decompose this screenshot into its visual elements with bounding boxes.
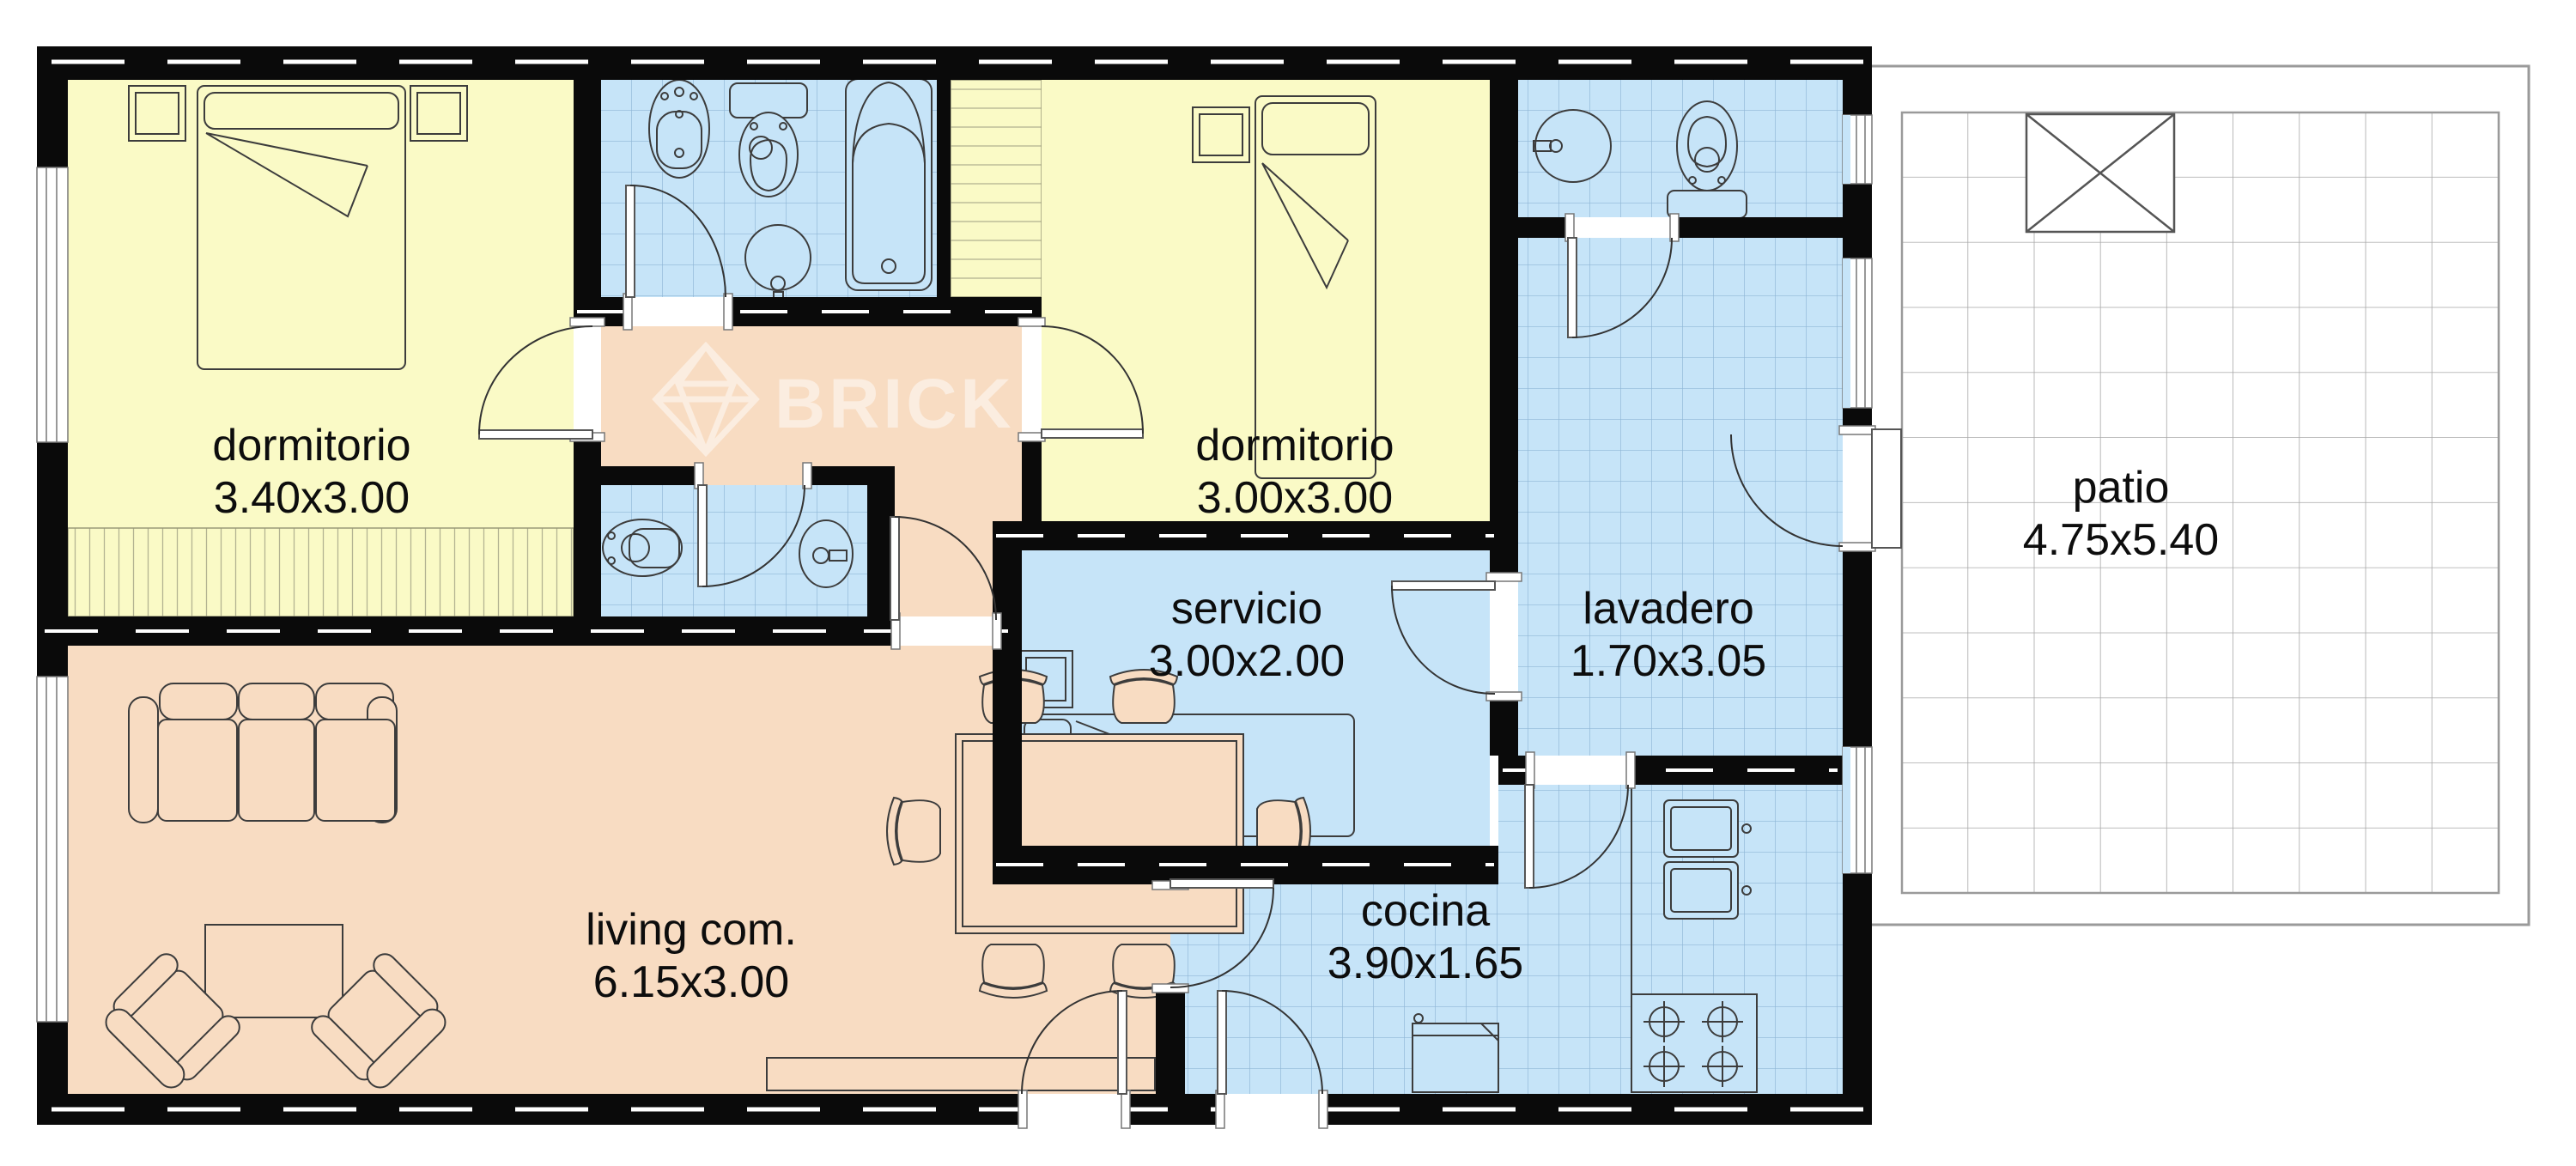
door-leaf [1218, 991, 1226, 1094]
wall-segment [1843, 184, 1872, 258]
nightstand-icon [1193, 107, 1249, 162]
door-leaf [626, 185, 635, 297]
door-leaf [1525, 785, 1534, 888]
door-leaf [1568, 238, 1577, 337]
window [37, 677, 68, 1022]
wall-segment [1490, 80, 1518, 580]
watermark-text: BRICK [775, 365, 1015, 443]
wall-segment [993, 550, 1022, 884]
label-patio-name: patio [2073, 463, 2170, 513]
wall-segment [805, 466, 867, 485]
label-living-name: living com. [586, 905, 797, 955]
wall-segment [1518, 217, 1569, 238]
floor-plan: BRICK [0, 0, 2576, 1166]
stove-icon [1631, 994, 1757, 1092]
wall-segment [1490, 695, 1518, 756]
window [1843, 258, 1872, 408]
bidet-icon [649, 80, 709, 178]
coffee-table-icon [205, 925, 343, 1017]
label-dormitorio2-dims: 3.00x3.00 [1197, 473, 1393, 523]
door-leaf [698, 485, 707, 586]
sofa-icon [129, 683, 397, 823]
toilet-icon [603, 519, 682, 576]
bathtub-icon [846, 79, 932, 290]
sink-icon [1534, 110, 1611, 182]
wall-segment [574, 436, 601, 616]
wall-segment [574, 466, 698, 485]
door-leaf [1872, 429, 1901, 548]
label-dormitorio1-name: dormitorio [212, 421, 410, 471]
wall-segment [574, 80, 601, 297]
wall-segment [1843, 80, 1872, 115]
sink-icon [799, 520, 853, 587]
nightstand-icon [410, 86, 467, 141]
window [1843, 747, 1872, 873]
fridge-icon [1413, 1014, 1498, 1092]
door-leaf [1118, 991, 1127, 1094]
sideboard-icon [767, 1058, 1155, 1090]
door-leaf [1170, 879, 1273, 888]
label-cocina-dims: 3.90x1.65 [1327, 938, 1523, 988]
label-dormitorio1-dims: 3.40x3.00 [214, 473, 410, 523]
dormitorio2-closet-hatch [951, 80, 1042, 297]
label-servicio-name: servicio [1171, 584, 1322, 634]
patio-structure-icon [2026, 114, 2174, 232]
patio-area [1872, 66, 2529, 925]
wall-segment [1628, 756, 1843, 785]
door-leaf [1392, 581, 1495, 590]
label-patio-dims: 4.75x5.40 [2023, 515, 2219, 565]
wall-segment [937, 80, 951, 297]
exterior-door-opening [1022, 1094, 1125, 1125]
nightstand-icon [129, 86, 185, 141]
window [1843, 115, 1872, 184]
label-servicio-dims: 3.00x2.00 [1149, 636, 1345, 686]
door-leaf [1042, 429, 1143, 438]
label-lavadero-name: lavadero [1583, 584, 1753, 634]
wall-segment [1156, 987, 1185, 1094]
label-cocina-name: cocina [1361, 886, 1490, 936]
wall-segment [1672, 217, 1843, 238]
patio-paving-grid [1902, 112, 2499, 893]
label-lavadero-dims: 1.70x3.05 [1571, 636, 1766, 686]
double-bed-icon [197, 86, 405, 369]
wall-segment [1843, 546, 1872, 747]
label-living-dims: 6.15x3.00 [593, 957, 789, 1007]
door-leaf [890, 517, 899, 620]
floor-plan-page: BRICK [0, 0, 2576, 1166]
dormitorio1-wardrobe [68, 528, 574, 616]
patio-door-opening [1843, 431, 1872, 546]
exterior-door-opening [1219, 1094, 1322, 1125]
label-dormitorio2-name: dormitorio [1195, 421, 1394, 471]
door-leaf [479, 430, 592, 439]
window [37, 167, 68, 442]
wall-segment [37, 80, 68, 167]
chair-icon [980, 944, 1047, 998]
chair-icon [887, 798, 940, 865]
wall-segment [1843, 873, 1872, 1094]
